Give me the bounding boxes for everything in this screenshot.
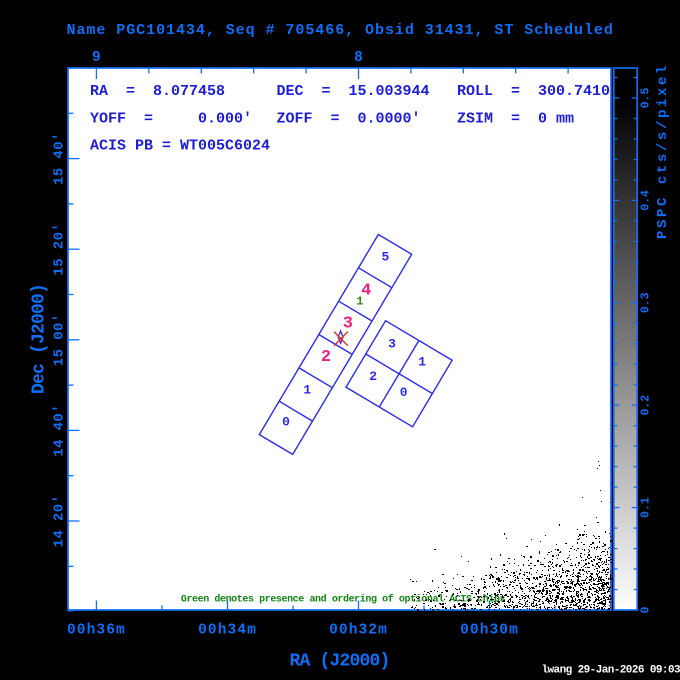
svg-text:0.2: 0.2 xyxy=(640,395,653,416)
svg-text:3: 3 xyxy=(343,315,353,334)
svg-text:Name PGC101434, Seq # 705466,: Name PGC101434, Seq # 705466, Obsid 3143… xyxy=(67,22,614,39)
svg-text:00h32m: 00h32m xyxy=(329,623,388,639)
svg-text:0: 0 xyxy=(282,415,290,430)
svg-text:1: 1 xyxy=(303,383,311,398)
svg-text:1: 1 xyxy=(418,355,426,370)
svg-text:00h36m: 00h36m xyxy=(67,623,126,639)
svg-text:Green denotes presence and ord: Green denotes presence and ordering of o… xyxy=(181,594,506,606)
svg-text:0.5: 0.5 xyxy=(640,88,653,109)
svg-text:0: 0 xyxy=(400,385,408,400)
svg-text:15 40′: 15 40′ xyxy=(52,132,68,185)
svg-text:8: 8 xyxy=(354,50,363,66)
svg-text:2: 2 xyxy=(321,348,331,367)
svg-text:PSPC cts/s/pixel: PSPC cts/s/pixel xyxy=(655,63,671,239)
svg-text:00h34m: 00h34m xyxy=(198,623,257,639)
svg-text:0.3: 0.3 xyxy=(640,292,653,313)
svg-text:0.4: 0.4 xyxy=(640,190,653,211)
svg-text:ZOFF = 0.0000': ZOFF = 0.0000' xyxy=(277,110,421,127)
svg-text:0.1: 0.1 xyxy=(640,497,653,518)
svg-text:RA = 8.077458: RA = 8.077458 xyxy=(90,83,225,100)
svg-text:1: 1 xyxy=(356,294,363,308)
svg-text:00h30m: 00h30m xyxy=(460,623,519,639)
svg-text:15 20′: 15 20′ xyxy=(52,223,68,276)
svg-text:lwang 29-Jan-2026 09:03: lwang 29-Jan-2026 09:03 xyxy=(542,665,680,677)
svg-text:ZSIM = 0 mm: ZSIM = 0 mm xyxy=(457,110,574,127)
svg-text:3: 3 xyxy=(388,336,396,351)
svg-text:9: 9 xyxy=(92,50,101,66)
svg-text:DEC = 15.003944: DEC = 15.003944 xyxy=(277,83,430,100)
svg-text:5: 5 xyxy=(381,250,389,265)
svg-text:YOFF = 0.000': YOFF = 0.000' xyxy=(90,110,252,127)
svg-text:15 00′: 15 00′ xyxy=(52,313,68,366)
svg-text:2: 2 xyxy=(369,369,377,384)
svg-text:14 40′: 14 40′ xyxy=(52,404,68,457)
svg-text:ACIS PB = WT005C6024: ACIS PB = WT005C6024 xyxy=(90,138,270,155)
svg-text:Dec (J2000): Dec (J2000) xyxy=(30,284,50,394)
svg-text:ROLL = 300.7410: ROLL = 300.7410 xyxy=(457,83,610,100)
svg-text:RA (J2000): RA (J2000) xyxy=(289,652,389,672)
svg-text:14 20′: 14 20′ xyxy=(52,495,68,548)
svg-text:0: 0 xyxy=(640,606,653,613)
